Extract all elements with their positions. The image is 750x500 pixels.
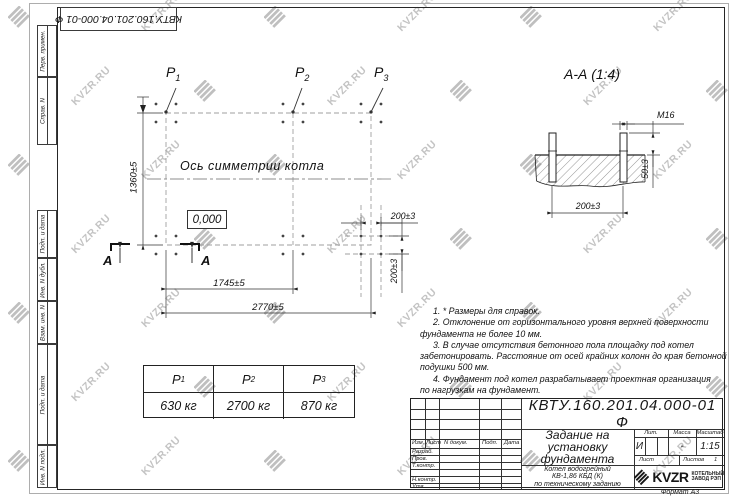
tb-col-data: Дата <box>504 440 519 446</box>
load-table-header-p3: P3 <box>284 366 354 393</box>
tb-line <box>411 429 521 430</box>
tb-massa-value: - <box>668 437 696 455</box>
tb-line <box>411 409 521 410</box>
note-line: по нагрузкам на фундамент. <box>420 385 732 396</box>
section-letter-right: А <box>201 253 210 268</box>
load-label-p1: P1 <box>166 64 180 83</box>
tb-row-razrab: Разраб. <box>412 449 433 455</box>
dim-text-bolt-y: 200±3 <box>389 254 399 288</box>
load-table: P1 P2 P3 630 кг 2700 кг 870 кг <box>143 365 355 418</box>
anchor-bolt-dot <box>175 235 178 238</box>
company-logo: KVZR КОТЕЛЬНЫЙ ЗАВОД РЭП <box>634 465 724 489</box>
anchor-bolt-dot <box>175 103 178 106</box>
load-value-p2: 2700 кг <box>214 393 284 419</box>
tb-row-tkontr: Т.контр. <box>412 463 435 469</box>
anchor-bolt-dot <box>282 253 285 256</box>
tb-lit-value: И <box>634 437 645 455</box>
load-label-p3: P3 <box>374 64 388 83</box>
benchmark-arrow <box>140 105 146 113</box>
drawing-title: Задание на установку фундамента <box>521 429 634 465</box>
tb-col-podp: Подп. <box>482 440 497 446</box>
load-leaders <box>165 88 383 113</box>
doc-number: КВТУ.160.201.04.000-01 Ф <box>521 400 724 428</box>
tb-massa-header: Масса <box>668 429 696 437</box>
anchor-bolt-dot <box>360 235 363 238</box>
tb-sheets-label: Листов <box>683 457 704 463</box>
anchor-bolt-dot <box>155 253 158 256</box>
note-line: 4. Фундамент под котел разрабатывает про… <box>420 374 732 385</box>
dim-text-50: 50±3 <box>640 152 650 186</box>
format-label: Формат А3 <box>640 489 720 496</box>
anchor-bolt-dot <box>155 235 158 238</box>
title-block: Изм. Лист N докум. Подп. Дата Разраб. Пр… <box>410 398 723 488</box>
tb-scale-value: 1:15 <box>696 437 724 455</box>
tb-lit-header: Лит. <box>634 429 668 437</box>
anchor-bolt-dot <box>380 253 383 256</box>
dim-text-2770: 2770±5 <box>238 302 298 313</box>
anchor-bolt-dot <box>282 121 285 124</box>
anchor-bolt-dot <box>155 121 158 124</box>
note-line: 2. Отклонение от горизонтального уровня … <box>420 317 732 328</box>
anchor-bolt-dot <box>282 103 285 106</box>
section-title: А-А (1:4) <box>552 66 632 82</box>
notes-block: 1. * Размеры для справок. 2. Отклонение … <box>420 306 732 396</box>
tb-line <box>411 455 521 456</box>
tb-col-list: Лист <box>426 440 441 446</box>
kvzr-logo-icon <box>634 469 649 486</box>
anchor-bolt-dot <box>302 103 305 106</box>
elevation-mark: 0,000 <box>187 210 227 229</box>
load-value-p3: 870 кг <box>284 393 354 419</box>
anchor-bolt-dot <box>302 253 305 256</box>
anchor-bolt-dot <box>302 121 305 124</box>
tb-sheets-value: 1 <box>714 457 717 463</box>
anchor-bolt-dot <box>155 103 158 106</box>
tb-masshtab-header: Масштаб <box>696 429 724 437</box>
dim-text-200-section: 200±3 <box>558 201 618 211</box>
product-name: Котел водогрейный КВ-1,86 КБД (К) по тех… <box>521 465 634 489</box>
anchor-bolt-dot <box>360 253 363 256</box>
anchor-bolt-dot <box>380 235 383 238</box>
note-line: забетонировать. Расстояние от осей крайн… <box>420 351 732 362</box>
drawing-sheet: KVZR.RUKVZR.RUKVZR.RUKVZR.RUKVZR.RUKVZR.… <box>0 0 750 500</box>
kvzr-logo-caption: КОТЕЛЬНЫЙ ЗАВОД РЭП <box>691 472 724 483</box>
tb-sheet-label: Лист <box>639 457 654 463</box>
tb-row-utv: Утв. <box>412 484 425 490</box>
dim-text-bolt-x: 200±3 <box>386 211 420 221</box>
tb-row-nkontr: Н.контр. <box>412 477 437 483</box>
foundation-outline-dashed <box>166 113 398 297</box>
note-line: фундамента не более 10 мм. <box>420 329 732 340</box>
load-value-p1: 630 кг <box>144 393 214 419</box>
dim-text-1360: 1360±5 <box>129 148 140 208</box>
tb-col-izm: Изм. <box>412 440 424 446</box>
tb-line <box>645 437 646 455</box>
load-table-header-p1: P1 <box>144 366 214 393</box>
anchor-bolt-dot <box>175 253 178 256</box>
kvzr-logo-text: KVZR <box>652 469 688 485</box>
dim-text-1745: 1745±5 <box>199 278 259 289</box>
note-line: подушки 500 мм. <box>420 362 732 373</box>
anchor-bolt-dot <box>360 103 363 106</box>
anchor-bolt-dot <box>380 121 383 124</box>
anchor-bolt-dot <box>282 235 285 238</box>
tb-col-ndok: N докум. <box>444 440 467 446</box>
section-letter-left: А <box>103 253 112 268</box>
symmetry-axis-label: Ось симметрии котла <box>180 159 324 173</box>
tb-line <box>657 437 658 455</box>
anchor-bolt-dot <box>360 121 363 124</box>
anchor-bolt-dot <box>175 121 178 124</box>
section-view-arrows <box>120 248 192 263</box>
anchor-bolt-dot <box>302 235 305 238</box>
note-line: 3. В случае отсутствия бетонного пола пл… <box>420 340 732 351</box>
dims-bolt-spacing <box>341 217 418 293</box>
tb-row-prov: Пров. <box>412 456 427 462</box>
load-table-header-p2: P2 <box>214 366 284 393</box>
anchor-bolt-dot <box>380 103 383 106</box>
tb-line <box>411 469 521 470</box>
thread-label-m16: М16 <box>657 110 675 120</box>
load-label-p2: P2 <box>295 64 309 83</box>
tb-line <box>411 419 521 420</box>
tb-line <box>411 483 521 484</box>
tb-line <box>679 455 680 465</box>
dim-1360 <box>137 97 163 245</box>
note-line: 1. * Размеры для справок. <box>420 306 732 317</box>
